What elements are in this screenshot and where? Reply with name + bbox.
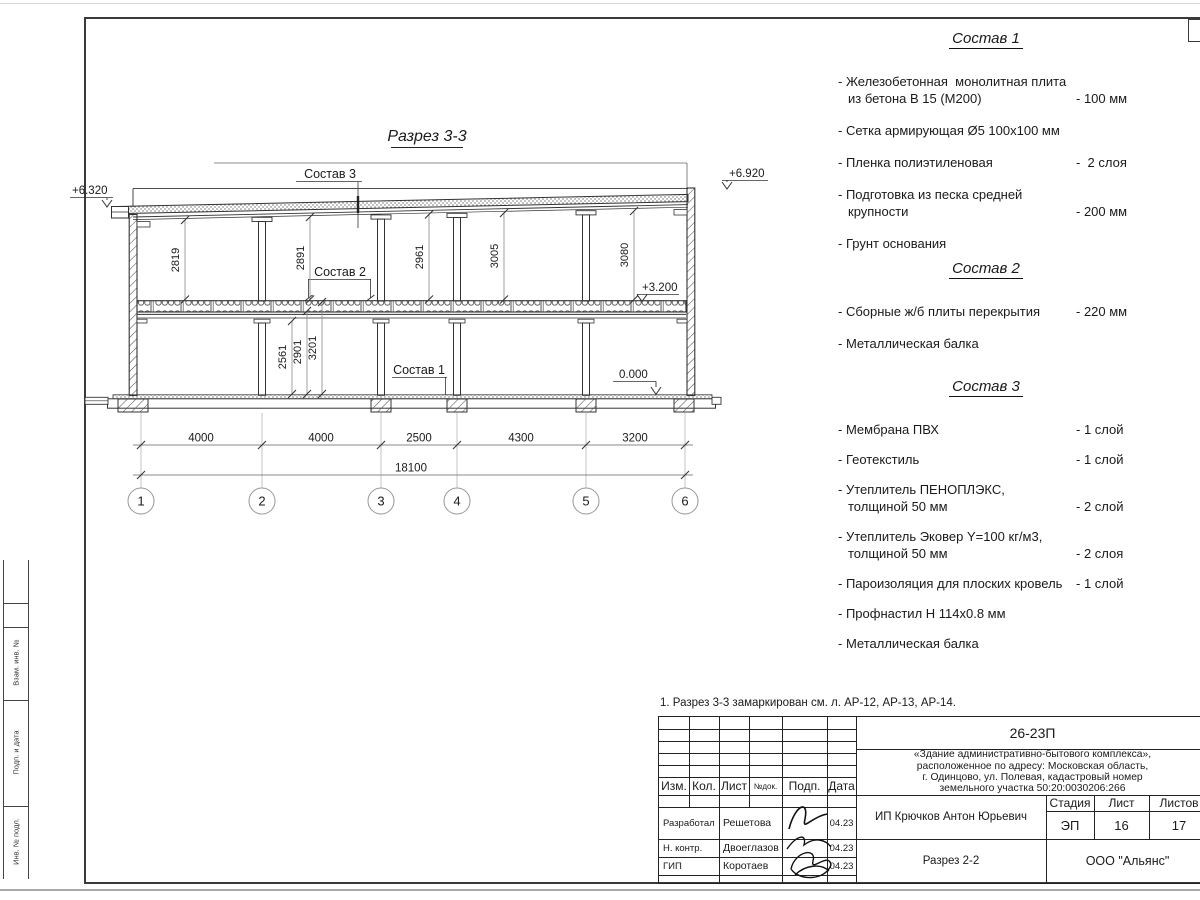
spec-item: - Утеплитель ПЕНОПЛЭКС, толщиной 50 мм- …	[838, 481, 1134, 515]
spec2-title: Состав 2	[838, 260, 1134, 277]
corner-stamp-box	[1188, 19, 1200, 42]
axis-6: 6	[681, 494, 688, 509]
spec-item: - Железобетонная монолитная плита из бет…	[838, 73, 1134, 107]
elevation-left-text: +6.320	[72, 185, 108, 197]
margin-label-podp: Подп. и дата	[12, 718, 21, 788]
dim-lower-3: 3201	[307, 336, 319, 360]
view-title-text: Разрез 3-3	[387, 128, 466, 145]
sheets-total: 17	[1149, 811, 1200, 839]
left-margin-column: Взам. инв. № Подп. и дата Инв. № подл.	[3, 560, 29, 879]
columns-upper	[137, 210, 687, 302]
spec-item: - Сборные ж/б плиты перекрытия- 220 мм	[838, 303, 1134, 320]
spec-item: - Пленка полиэтиленовая- 2 слоя	[838, 154, 1134, 171]
dims-horizontal: 4000 4000 2500 4300 3200 18100	[133, 413, 693, 488]
axis-4: 4	[453, 494, 460, 509]
spec-sostav-3: Состав 3 - Мембрана ПВХ- 1 слой - Геотек…	[838, 378, 1134, 665]
sostav1-label: Состав 1	[393, 363, 445, 377]
dim-h-2: 4000	[308, 433, 334, 445]
sheet-label: Лист	[1094, 795, 1149, 811]
col-ndok: №док.	[749, 777, 782, 795]
signature-reshetova	[789, 807, 827, 829]
signature-dvoeglazov	[787, 837, 831, 849]
margin-label-inv: Инв. № подл.	[12, 807, 21, 877]
signature-korotaev	[791, 853, 831, 878]
right-wall	[687, 188, 695, 396]
spec-item: - Пароизоляция для плоских кровель- 1 сл…	[838, 575, 1134, 592]
elevation-right: +6.920	[722, 168, 768, 189]
section-drawing: Разрез 3-3	[0, 0, 800, 560]
dim-h-1: 4000	[188, 433, 214, 445]
stage-value: ЭП	[1046, 811, 1094, 839]
dim-lower-2: 2901	[292, 340, 304, 364]
margin-label-vzam: Взам. инв. №	[12, 628, 21, 698]
col-list: Лист	[719, 777, 749, 795]
elevation-left: +6.320	[70, 185, 113, 207]
floor-slab	[137, 301, 686, 318]
spec-sostav-1: Состав 1 - Железобетонная монолитная пли…	[838, 30, 1134, 267]
sostav3-label: Состав 3	[304, 167, 356, 181]
row-role: ГИП	[660, 857, 721, 875]
axis-bubbles: 1 2 3 4 5 6	[128, 488, 698, 514]
company-name: ООО "Альянс"	[1046, 839, 1200, 883]
page-edge-bottom	[0, 889, 1200, 891]
spec-item: - Металлическая балка	[838, 335, 1134, 352]
roof	[112, 163, 689, 220]
elevation-floor2-text: +3.200	[642, 282, 678, 294]
elevation-ground: 0.000	[613, 369, 661, 394]
axis-2: 2	[258, 494, 265, 509]
axis-5: 5	[582, 494, 589, 509]
row-name: Решетова	[720, 807, 784, 839]
dim-h-5: 3200	[622, 433, 648, 445]
columns-lower	[137, 319, 687, 395]
note-text: 1. Разрез 3-3 замаркирован см. л. АР-12,…	[660, 697, 956, 709]
col-podp: Подп.	[782, 777, 827, 795]
drawing-sheet: { "drawing": { "title": "Разрез 3-3", "l…	[0, 0, 1200, 900]
stage-label: Стадия	[1046, 795, 1094, 811]
dim-upper-4: 3005	[489, 244, 501, 268]
row-name: Двоеглазов	[720, 839, 784, 857]
sostav1-leader: Состав 1	[392, 363, 447, 395]
client-name: ИП Крючков Антон Юрьевич	[856, 795, 1046, 839]
sostav2-leader: Состав 2	[305, 265, 375, 301]
sheets-label: Листов	[1149, 795, 1200, 811]
elevation-floor2: +3.200	[637, 282, 679, 301]
ground-slab	[85, 395, 721, 412]
spec-item: - Грунт основания	[838, 235, 1134, 252]
row-role: Н. контр.	[660, 839, 721, 857]
spec-sostav-2: Состав 2 - Сборные ж/б плиты перекрытия-…	[838, 260, 1134, 367]
dim-total: 18100	[395, 463, 427, 475]
row-role: Разработал	[660, 807, 721, 839]
sostav3-leader: Состав 3	[296, 167, 362, 228]
axis-1: 1	[137, 494, 144, 509]
spec-item: - Геотекстиль- 1 слой	[838, 451, 1134, 468]
spec-item: - Профнастил Н 114х0.8 мм	[838, 605, 1134, 622]
dims-upper: 2819 2891 2961 3005 3080	[170, 207, 638, 304]
title-block: Изм. Кол. Лист №док. Подп. Дата Разработ…	[658, 716, 1200, 884]
sostav2-label: Состав 2	[314, 265, 366, 279]
left-wall	[129, 215, 137, 396]
dim-upper-2: 2891	[295, 246, 307, 270]
dim-upper-5: 3080	[619, 243, 631, 267]
doc-number: 26-23П	[856, 717, 1200, 749]
spec-item: - Подготовка из песка средней крупности-…	[838, 186, 1134, 220]
dim-lower-1: 2561	[277, 345, 289, 369]
axis-3: 3	[377, 494, 384, 509]
col-izm: Изм.	[659, 777, 689, 795]
sheet-number: 16	[1094, 811, 1149, 839]
col-kol: Кол.	[689, 777, 719, 795]
project-name: «Здание административно-бытового комплек…	[856, 749, 1200, 795]
dim-h-4: 4300	[508, 433, 534, 445]
spec-item: - Утеплитель Эковер Y=100 кг/м3, толщино…	[838, 528, 1134, 562]
col-data: Дата	[827, 777, 856, 795]
dim-upper-3: 2961	[414, 245, 426, 269]
spec-item: - Сетка армирующая Ø5 100х100 мм	[838, 122, 1134, 139]
view-title: Разрез 3-3	[387, 128, 466, 148]
spec3-title: Состав 3	[838, 378, 1134, 395]
row-name: Коротаев	[720, 857, 784, 875]
dim-upper-1: 2819	[170, 248, 182, 272]
elevation-ground-text: 0.000	[619, 369, 648, 381]
elevation-right-text: +6.920	[729, 168, 765, 180]
signatures	[781, 801, 841, 881]
drawing-name: Разрез 2-2	[856, 839, 1046, 883]
spec-item: - Мембрана ПВХ- 1 слой	[838, 421, 1134, 438]
spec-item: - Металлическая балка	[838, 635, 1134, 652]
dim-h-3: 2500	[406, 433, 432, 445]
spec1-title: Состав 1	[838, 30, 1134, 47]
dims-lower: 2561 2901 3201	[277, 298, 326, 398]
